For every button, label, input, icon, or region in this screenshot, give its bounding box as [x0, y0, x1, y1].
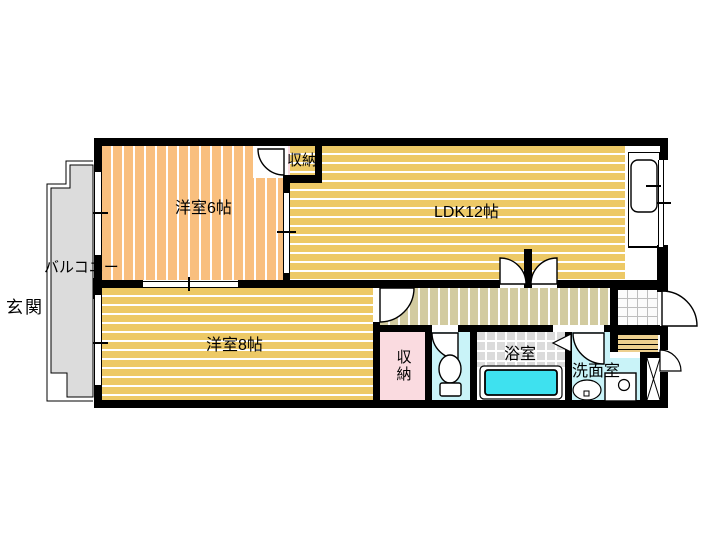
window-center-tick: [87, 342, 108, 344]
wall-r6-ldk-a: [283, 183, 290, 193]
label-balcony: バルコニー: [44, 260, 119, 277]
wall-top: [94, 138, 668, 146]
wall-right-3: [660, 326, 668, 350]
floorplan-canvas: バルコニー 玄関 洋室6帖 LDK12帖 収納 洋室8帖 収納 浴室 洗面室: [0, 0, 710, 550]
wall-r6-ldk-b: [283, 273, 290, 280]
wall-mid-1: [94, 280, 143, 288]
kitchen-area: [628, 152, 660, 248]
wall-hall-bottom-1: [373, 325, 432, 332]
wall-hall-tile: [610, 288, 618, 352]
label-ldk: LDK12帖: [434, 204, 499, 222]
window-room8-balcony: [94, 295, 102, 385]
closet-upper-door-clearance: [253, 146, 284, 178]
label-bathroom: 浴室: [504, 346, 536, 364]
label-entrance: 玄関: [6, 299, 44, 318]
wall-toilet-bath: [470, 332, 477, 400]
double-door-post: [524, 249, 532, 288]
window-center-tick: [652, 202, 671, 204]
label-closet-lower: 収納: [394, 349, 411, 383]
bathtub-symbol: [485, 370, 557, 395]
hallway-floor: [380, 288, 610, 325]
bathtub-rim: [480, 366, 562, 399]
wall-hall-bottom-2: [458, 325, 553, 332]
wall-mid-3: [557, 280, 610, 288]
toilet-room-floor: [432, 332, 470, 400]
label-closet-upper: 収納: [287, 153, 317, 170]
pipe-space-x: [647, 358, 660, 400]
window-center-tick: [87, 212, 108, 214]
closet-upper-wall-bottom: [283, 175, 322, 183]
wall-closet-toilet: [425, 332, 432, 400]
wall-r8-hall: [373, 322, 380, 400]
wall-mid-4: [610, 280, 668, 290]
wall-bottom: [94, 400, 668, 408]
label-western-room-8: 洋室8帖: [206, 337, 263, 355]
wall-left-1: [94, 138, 102, 172]
sliding-door-r6-ldk: [283, 193, 290, 273]
entrance-tile-floor: [618, 290, 658, 325]
wall-ps-top: [640, 352, 668, 358]
sliding-partition-r6-r8: [143, 281, 238, 288]
kitchen-bottom-line: [628, 246, 658, 248]
balcony-divider-stub: [84, 278, 94, 299]
pipe-space-x: [647, 358, 660, 400]
entrance-steps: [618, 335, 658, 352]
door-swing-entrance: [662, 291, 697, 326]
wall-mid-2: [238, 280, 500, 288]
wall-right-4: [660, 372, 668, 408]
wall-right-1: [660, 138, 668, 160]
window-center-tick: [277, 231, 296, 233]
label-western-room-6: 洋室6帖: [175, 200, 232, 218]
wall-wash-ps: [640, 358, 647, 400]
wall-left-3: [94, 385, 102, 408]
label-washroom: 洗面室: [572, 363, 620, 381]
window-center-tick: [188, 277, 190, 291]
wall-bath-wash: [565, 332, 572, 400]
